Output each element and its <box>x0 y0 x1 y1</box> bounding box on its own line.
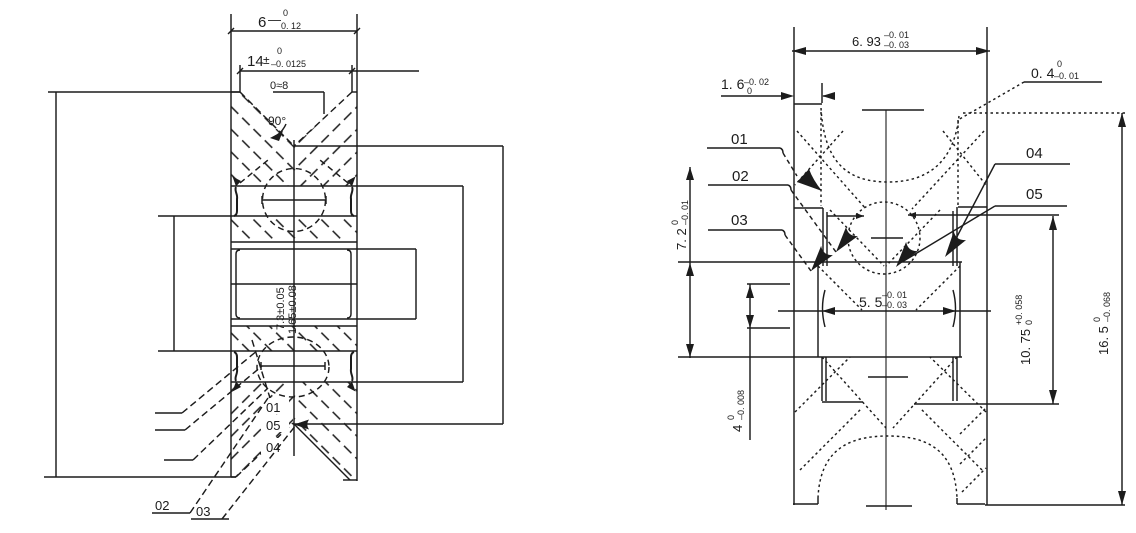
svg-text:5. 5: 5. 5 <box>859 294 883 310</box>
svg-text:0: 0 <box>726 415 736 420</box>
svg-text:01: 01 <box>731 131 748 148</box>
svg-text:–0. 01: –0. 01 <box>680 200 690 225</box>
svg-text:–0. 01: –0. 01 <box>884 30 909 40</box>
svg-text:6: 6 <box>258 14 266 31</box>
svg-text:–0. 008: –0. 008 <box>736 390 746 420</box>
svg-text:03: 03 <box>196 504 210 519</box>
svg-text:6. 93: 6. 93 <box>852 34 881 49</box>
svg-text:1.65±0.08: 1.65±0.08 <box>287 285 299 334</box>
svg-text:–0. 01: –0. 01 <box>1054 71 1079 81</box>
svg-text:1. 6: 1. 6 <box>721 76 745 92</box>
svg-text:0: 0 <box>277 46 282 56</box>
svg-text:–0. 03: –0. 03 <box>882 300 907 310</box>
svg-text:—: — <box>268 12 281 27</box>
svg-text:0: 0 <box>1024 320 1034 325</box>
svg-text:–0. 068: –0. 068 <box>1102 292 1112 322</box>
svg-text:0: 0 <box>283 8 288 18</box>
svg-text:02: 02 <box>155 498 169 513</box>
svg-text:10. 75: 10. 75 <box>1018 329 1033 365</box>
svg-text:4: 4 <box>730 425 745 432</box>
svg-text:0≈8: 0≈8 <box>270 80 288 92</box>
svg-text:0. 4: 0. 4 <box>1031 65 1055 81</box>
svg-text:90°: 90° <box>268 114 286 128</box>
svg-text:16. 5: 16. 5 <box>1096 326 1111 355</box>
svg-text:05: 05 <box>1026 186 1043 203</box>
svg-text:–0. 0125: –0. 0125 <box>271 59 306 69</box>
svg-text:0: 0 <box>1057 59 1062 69</box>
svg-text:05: 05 <box>266 418 280 433</box>
svg-text:02: 02 <box>732 168 749 185</box>
svg-text:04: 04 <box>1026 145 1043 162</box>
svg-text:–0. 03: –0. 03 <box>884 40 909 50</box>
svg-text:±: ± <box>263 53 270 67</box>
svg-text:+0. 058: +0. 058 <box>1014 295 1024 325</box>
svg-text:0. 12: 0. 12 <box>281 21 301 31</box>
svg-text:01: 01 <box>266 400 280 415</box>
svg-text:03: 03 <box>731 212 748 229</box>
svg-text:14: 14 <box>247 53 264 70</box>
svg-text:7. 2: 7. 2 <box>674 228 689 250</box>
svg-text:0: 0 <box>1092 317 1102 322</box>
svg-text:–0. 01: –0. 01 <box>882 290 907 300</box>
svg-text:0: 0 <box>747 86 752 96</box>
svg-text:0: 0 <box>670 220 680 225</box>
svg-text:7.3±0.05: 7.3±0.05 <box>275 287 287 330</box>
